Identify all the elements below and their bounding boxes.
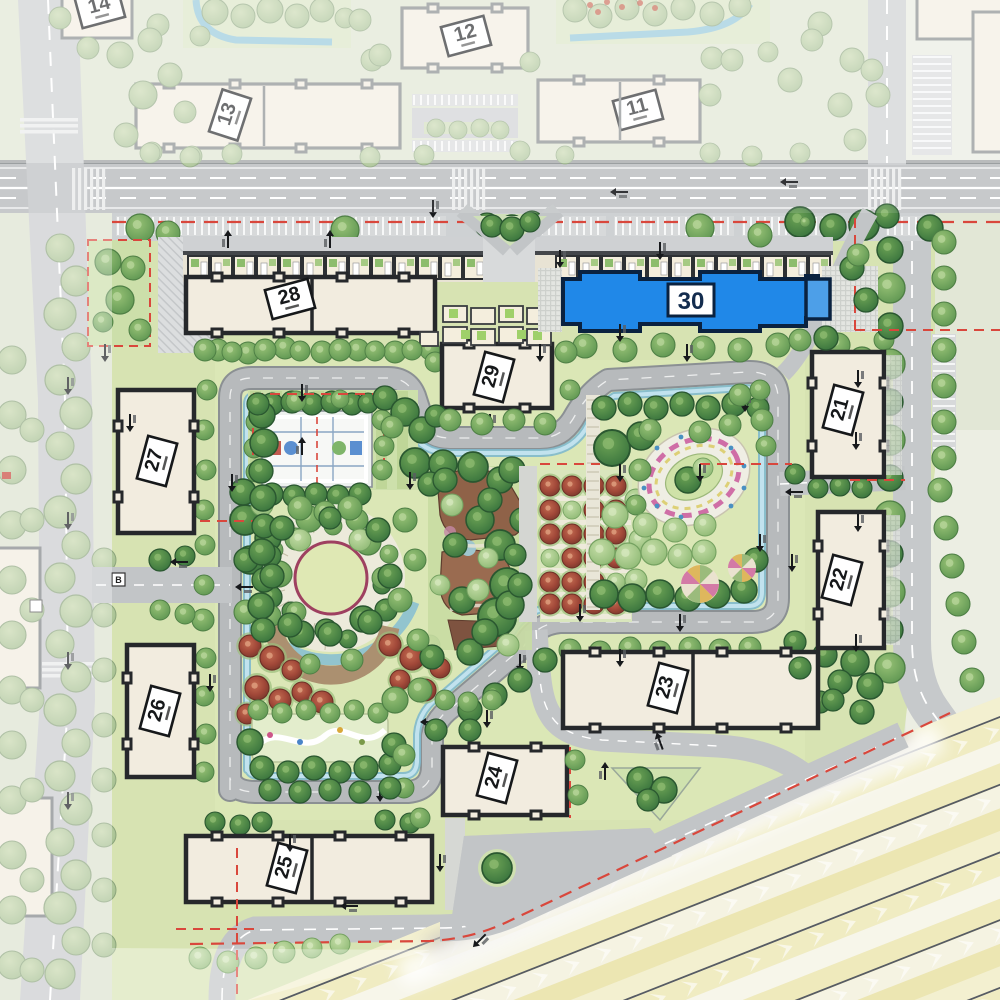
svg-text:B: B (115, 575, 122, 585)
svg-text:30: 30 (678, 288, 705, 315)
